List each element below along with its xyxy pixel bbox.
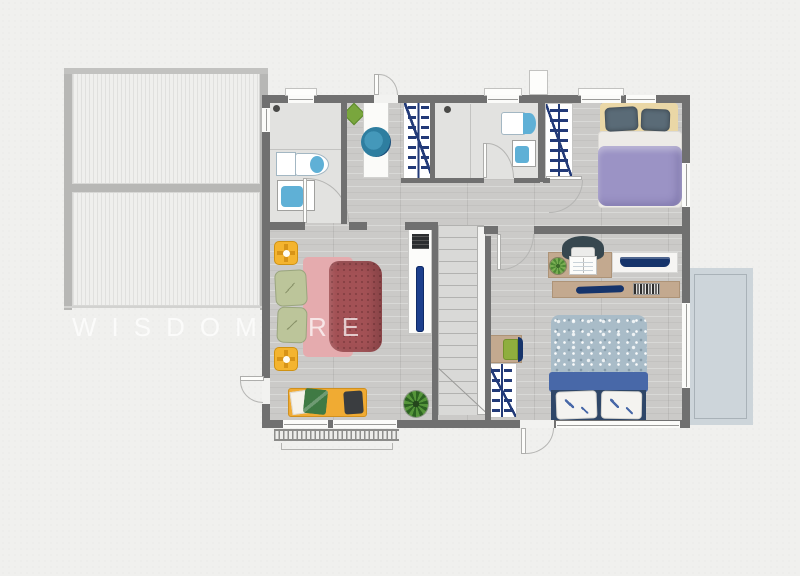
window-left — [262, 108, 270, 132]
wall-stair-halfwall — [485, 236, 491, 330]
toilet-seat — [310, 156, 324, 173]
blue-bed-pillow — [556, 390, 598, 419]
wall-master-top-2 — [349, 222, 367, 230]
green-chair — [503, 339, 518, 360]
wall-purple-room-left — [538, 98, 545, 182]
toilet-tank — [276, 152, 296, 176]
blue-bed-pillow — [601, 391, 642, 420]
wall-stair-left — [432, 225, 438, 420]
bench-pillow-black — [343, 390, 364, 414]
watermark-text: WISDOM RE — [72, 312, 374, 343]
balcony — [688, 268, 753, 425]
roof-edge-bottom — [64, 306, 268, 308]
shower-head-icon-2 — [444, 106, 451, 113]
door-swing-terrace — [240, 381, 263, 403]
shower-divider-1 — [270, 149, 341, 150]
open-book — [569, 256, 597, 275]
master-pillow-green — [274, 269, 308, 307]
wardrobe-purple-room — [545, 103, 573, 179]
round-basin — [361, 127, 391, 157]
wall-blue-room-top-2 — [534, 226, 690, 234]
wall-stub-closet-purple — [543, 178, 550, 183]
ceiling-spotlight-icon — [274, 241, 298, 265]
wardrobe-blue-room — [487, 363, 517, 418]
shelf-books — [633, 283, 660, 295]
purple-bed-duvet — [598, 146, 682, 206]
wall-nook-right — [430, 103, 435, 178]
wall-stub-bath2-b — [514, 178, 540, 183]
door-opening-bottom — [520, 420, 554, 428]
wall-blue-room-top-1 — [484, 226, 498, 234]
window-right-2 — [682, 303, 690, 388]
window-right-1 — [682, 163, 690, 207]
window-top-4 — [626, 95, 656, 103]
sink-bowl — [281, 186, 303, 207]
purple-bed-pillow — [641, 109, 671, 132]
door-swing-bottom-exterior — [526, 428, 554, 454]
door-opening-terrace — [262, 378, 270, 404]
ceiling-spotlight-icon — [274, 347, 298, 371]
roof-panel-upper — [72, 70, 260, 184]
shower-divider-2 — [470, 104, 471, 178]
window-top-1 — [288, 95, 314, 103]
window-bottom-3 — [556, 421, 680, 428]
window-bottom-1 — [283, 420, 328, 428]
sink-2-bowl — [515, 146, 529, 163]
wall-stub-closet-hall — [401, 178, 435, 183]
window-top-2 — [487, 95, 519, 103]
shower-head-icon — [273, 105, 280, 112]
plant-master — [404, 391, 428, 417]
wall-bathroom1-right — [341, 98, 347, 224]
green-chair-back — [518, 337, 523, 362]
door-opening-top — [374, 95, 398, 103]
chimney-box — [529, 70, 548, 95]
roof-beam-top — [64, 68, 268, 74]
window-bottom-2 — [333, 420, 397, 428]
door-swing-top-exterior — [379, 74, 398, 95]
plant-desk — [550, 258, 566, 274]
flower-box-hatch — [274, 429, 399, 441]
floor-plan-page: WISDOM RE — [0, 0, 800, 576]
window-top-3 — [581, 95, 621, 103]
purple-bed-pillow — [604, 106, 638, 132]
wall-blue-room-left — [485, 330, 491, 420]
blue-bed-band — [549, 372, 648, 392]
tv — [416, 266, 424, 332]
av-device — [412, 234, 429, 249]
blue-bed-duvet — [551, 315, 647, 375]
wall-stub-bath2-a — [435, 178, 484, 183]
flower-box-bracket — [281, 443, 393, 450]
toilet-2-seat — [523, 113, 536, 134]
bench-pillow-green — [303, 388, 328, 415]
roof-beam-middle — [64, 184, 268, 192]
wall-master-top-1 — [262, 222, 305, 230]
laptop — [620, 257, 670, 267]
roof-panel-lower — [72, 192, 260, 306]
